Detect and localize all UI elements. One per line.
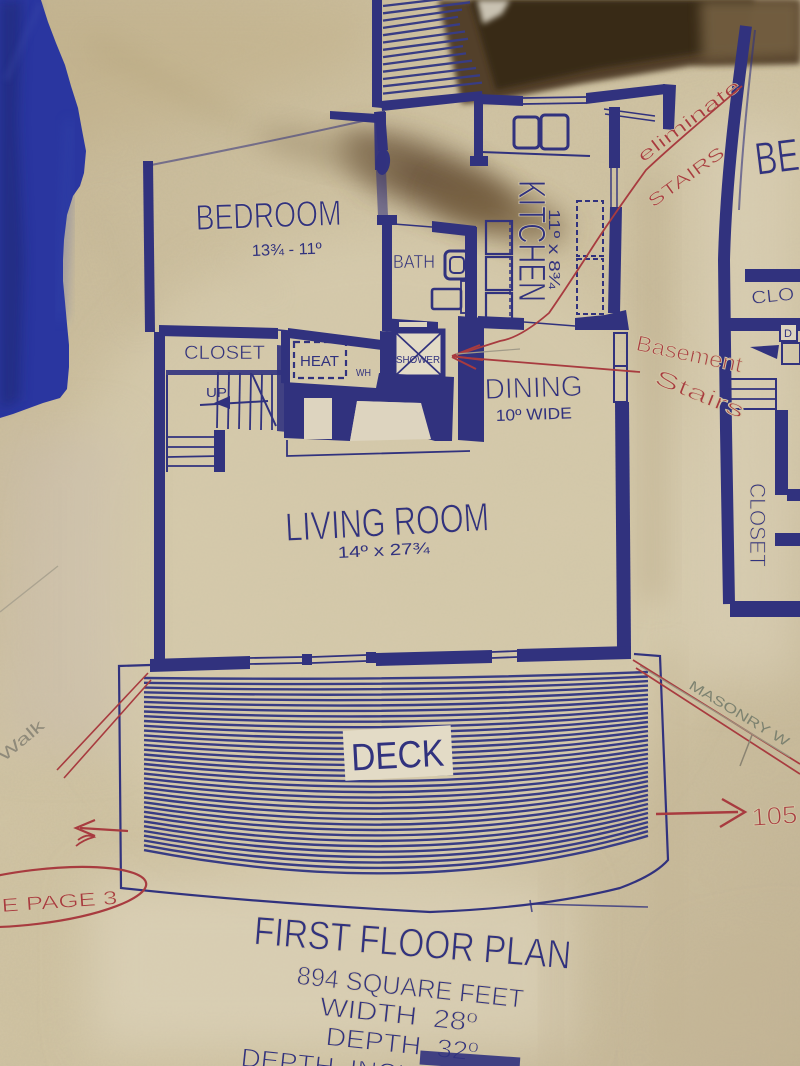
svg-text:10º WIDE: 10º WIDE (496, 405, 573, 425)
svg-text:13¾ - 11º: 13¾ - 11º (252, 241, 323, 260)
svg-text:CLOSET: CLOSET (745, 483, 770, 567)
svg-text:11º x 8¾: 11º x 8¾ (545, 209, 562, 290)
svg-text:BEDROOM: BEDROOM (195, 192, 342, 238)
svg-text:DINING: DINING (484, 371, 583, 406)
svg-text:WH: WH (356, 368, 371, 379)
svg-text:D: D (784, 328, 792, 340)
svg-text:BE: BE (752, 128, 800, 185)
svg-text:BATH: BATH (393, 252, 435, 272)
svg-text:UP: UP (206, 385, 227, 400)
svg-text:SHOWER: SHOWER (396, 355, 440, 366)
svg-text:HEAT: HEAT (300, 353, 339, 370)
svg-text:DECK: DECK (350, 733, 445, 780)
svg-text:105: 105 (750, 801, 798, 832)
svg-text:CLOSET: CLOSET (184, 343, 265, 364)
